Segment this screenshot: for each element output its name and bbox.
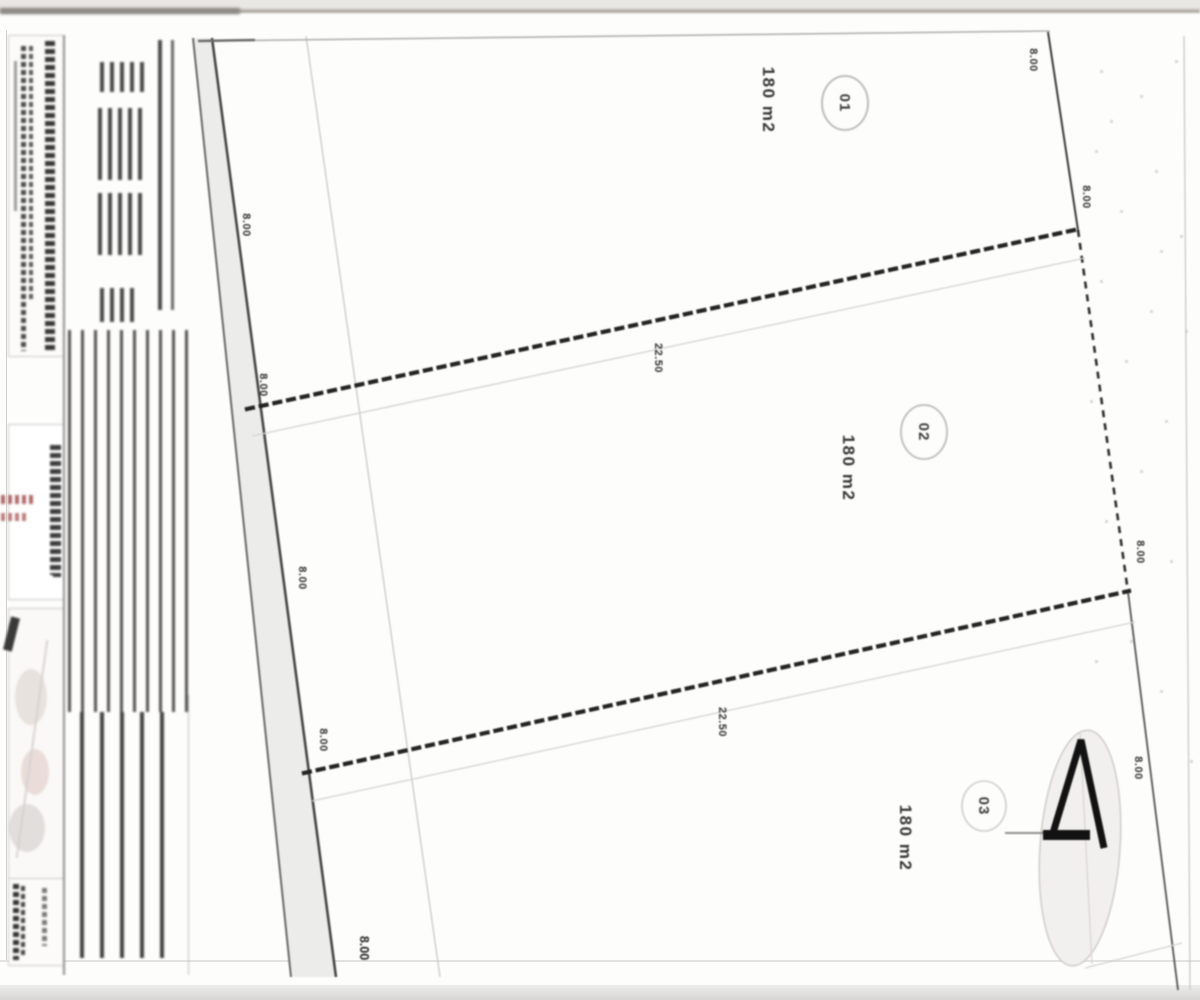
lot-03: 180 m2 03 [896,781,1006,871]
lot-boundary-dashed-1 [247,229,1079,409]
faint-setback-line [306,36,440,977]
dimension-label: 8.00 [1132,756,1144,779]
right-boundary-upper [1048,32,1078,230]
road-strip [193,38,336,977]
dimension-labels: 8.00 22.50 8.00 8.00 8.00 8.00 8.00 22.5… [240,48,1146,960]
neighbour-boundary-line [1184,36,1190,990]
dimension-label: 8.00 [1134,540,1146,563]
north-arrow-icon [1005,727,1128,968]
dimension-label: 8.00 [317,728,329,751]
top-boundary [198,31,1050,41]
dimension-label: 22.50 [716,707,728,737]
right-boundary-lower [1128,592,1178,990]
lot-01-number: 01 [836,94,853,113]
right-boundary-mid [1078,230,1128,592]
lot-03-area-label: 180 m2 [896,805,915,872]
dimension-label: 8.00 [357,936,371,960]
lot-03-number: 03 [975,797,992,816]
lot-01-area-label: 180 m2 [759,67,778,134]
dimension-label: 8.00 [257,373,269,396]
lot-boundary-dashed-2 [304,591,1129,773]
dimension-label: 8.00 [1027,48,1039,71]
lot-01: 180 m2 01 [759,67,868,134]
plan-sheet: 180 m2 01 180 m2 02 180 m2 03 8.00 22.50… [0,0,1200,1000]
drawing-area: 180 m2 01 180 m2 02 180 m2 03 8.00 22.50… [0,0,1200,1000]
dimension-label: 8.00 [240,213,252,236]
dimension-label: 22.50 [652,343,664,373]
lot-02-area-label: 180 m2 [839,435,858,502]
stipple-region [1090,60,1193,763]
lot-02: 180 m2 02 [839,405,947,501]
dimension-label: 8.00 [1080,185,1092,208]
dimension-label: 8.00 [296,566,308,589]
lot-02-number: 02 [915,423,932,442]
